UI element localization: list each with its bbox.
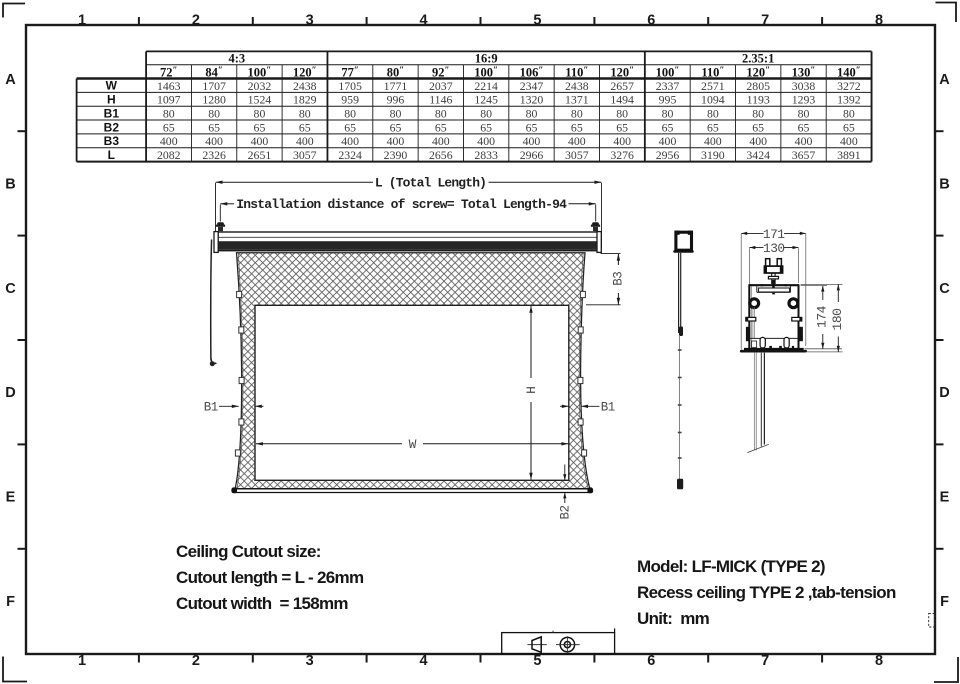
svg-text:2214: 2214 [474,79,498,93]
svg-text:65: 65 [798,120,810,134]
svg-text:2657: 2657 [610,79,634,93]
svg-text:1193: 1193 [747,93,770,107]
svg-text:1771: 1771 [384,79,408,93]
svg-text:3057: 3057 [293,148,317,162]
svg-text:100″: 100″ [474,65,498,80]
svg-text:400: 400 [432,134,450,148]
svg-text:7: 7 [761,12,769,28]
svg-text:65: 65 [344,120,356,134]
svg-text:4:3: 4:3 [228,52,245,66]
svg-text:B: B [939,176,949,192]
svg-text:2805: 2805 [746,79,770,93]
svg-text:400: 400 [795,134,813,148]
svg-text:2.35:1: 2.35:1 [742,52,774,66]
svg-text:80: 80 [344,107,356,121]
svg-text:D: D [5,385,15,401]
svg-text:106″: 106″ [520,65,544,80]
svg-text:1097: 1097 [157,93,181,107]
svg-text:2: 2 [192,12,200,28]
svg-text:174: 174 [815,305,830,328]
svg-text:65: 65 [163,120,175,134]
svg-text:3272: 3272 [837,79,861,93]
svg-text:3891: 3891 [837,148,861,162]
svg-text:1320: 1320 [520,93,544,107]
svg-text:C: C [5,281,16,297]
svg-text:65: 65 [752,120,764,134]
svg-text:1280: 1280 [202,93,226,107]
svg-text:2438: 2438 [565,79,589,93]
svg-text:400: 400 [523,134,541,148]
svg-text:B2: B2 [104,120,120,134]
svg-text:1524: 1524 [248,93,272,107]
svg-text:72″: 72″ [160,65,178,80]
svg-text:65: 65 [435,120,447,134]
svg-text:W: W [106,79,118,93]
svg-text:7: 7 [761,653,769,669]
svg-text:2390: 2390 [384,148,408,162]
svg-text:3038: 3038 [792,79,816,93]
svg-text:L: L [108,148,115,162]
svg-text:2326: 2326 [202,148,226,162]
svg-text:400: 400 [704,134,722,148]
svg-text:80: 80 [390,107,402,121]
svg-text:1392: 1392 [837,93,861,107]
svg-text:C: C [939,281,950,297]
svg-text:1829: 1829 [293,93,317,107]
svg-text:400: 400 [749,134,767,148]
svg-text:6: 6 [647,653,655,669]
svg-text:400: 400 [160,134,178,148]
svg-text:3: 3 [306,653,314,669]
svg-text:92″: 92″ [432,65,450,80]
svg-text:16:9: 16:9 [475,52,498,66]
svg-text:400: 400 [613,134,631,148]
svg-text:1094: 1094 [701,93,725,107]
svg-text:F: F [940,594,949,610]
svg-text:W: W [409,437,417,452]
svg-text:E: E [940,490,950,506]
svg-text:120″: 120″ [746,65,770,80]
svg-text:100″: 100″ [248,65,272,80]
svg-text:80: 80 [526,107,538,121]
svg-text:2347: 2347 [520,79,544,93]
svg-text:100″: 100″ [656,65,680,80]
svg-text:400: 400 [387,134,405,148]
svg-text:110″: 110″ [565,65,588,80]
svg-text:6: 6 [647,12,655,28]
svg-text:4: 4 [420,653,428,669]
svg-text:1245: 1245 [474,93,498,107]
svg-text:65: 65 [662,120,674,134]
svg-text:65: 65 [254,120,266,134]
svg-text:400: 400 [296,134,314,148]
svg-text:80: 80 [299,107,311,121]
svg-text:400: 400 [840,134,858,148]
svg-text:80″: 80″ [387,65,405,80]
svg-text:3057: 3057 [565,148,589,162]
svg-text:2337: 2337 [656,79,680,93]
svg-text:80: 80 [480,107,492,121]
svg-text:F: F [6,594,15,610]
svg-text:B1: B1 [601,401,615,415]
svg-text:84″: 84″ [205,65,223,80]
svg-text:8: 8 [875,653,883,669]
svg-text:2651: 2651 [248,148,272,162]
svg-text:80: 80 [435,107,447,121]
svg-text:1: 1 [78,12,86,28]
svg-text:2438: 2438 [293,79,317,93]
svg-text:65: 65 [843,120,855,134]
svg-text:Installation distance of screw: Installation distance of screw= Total Le… [236,197,567,212]
svg-text:400: 400 [659,134,677,148]
svg-text:65: 65 [526,120,538,134]
svg-text:3190: 3190 [701,148,725,162]
svg-text:65: 65 [208,120,220,134]
svg-text:2082: 2082 [157,148,181,162]
svg-text:130″: 130″ [792,65,816,80]
svg-text:959: 959 [341,93,359,107]
svg-text:171: 171 [763,227,785,242]
svg-text:5: 5 [533,653,541,669]
svg-text:B1: B1 [104,106,120,120]
svg-text:80: 80 [798,107,810,121]
svg-text:L (Total Length): L (Total Length) [375,176,486,191]
svg-text:2833: 2833 [474,148,498,162]
svg-text:2: 2 [192,653,200,669]
svg-text:77″: 77″ [341,65,359,80]
svg-text:2037: 2037 [429,79,453,93]
svg-text:400: 400 [205,134,223,148]
svg-text:4: 4 [420,12,428,28]
svg-text:E: E [6,490,16,506]
svg-text:H: H [524,386,539,394]
svg-text:D: D [939,385,949,401]
svg-text:400: 400 [568,134,586,148]
svg-text:80: 80 [843,107,855,121]
svg-text:B3: B3 [612,272,626,286]
svg-text:B1: B1 [204,401,218,415]
svg-text:80: 80 [163,107,175,121]
svg-text:180: 180 [830,309,845,331]
svg-text:80: 80 [254,107,266,121]
svg-text:3: 3 [306,12,314,28]
svg-text:65: 65 [707,120,719,134]
svg-text:80: 80 [662,107,674,121]
svg-text:1463: 1463 [157,79,181,93]
svg-text:1707: 1707 [202,79,226,93]
svg-text:120″: 120″ [610,65,634,80]
svg-text:110″: 110″ [701,65,724,80]
svg-text:130: 130 [763,241,785,256]
svg-text:120″: 120″ [293,65,317,80]
svg-text:80: 80 [616,107,628,121]
svg-text:H: H [107,93,116,107]
svg-text:8: 8 [875,12,883,28]
svg-text:B2: B2 [559,505,573,519]
svg-text:65: 65 [299,120,311,134]
svg-text:65: 65 [480,120,492,134]
svg-text:1371: 1371 [565,93,589,107]
svg-text:5: 5 [533,12,541,28]
svg-text:65: 65 [390,120,402,134]
svg-text:A: A [5,72,16,88]
svg-text:2966: 2966 [520,148,544,162]
svg-text:80: 80 [752,107,764,121]
svg-text:3276: 3276 [610,148,634,162]
svg-text:3424: 3424 [746,148,770,162]
svg-text:80: 80 [707,107,719,121]
svg-text:A: A [939,72,950,88]
svg-text:400: 400 [477,134,495,148]
svg-text:1146: 1146 [429,93,452,107]
svg-text:1: 1 [78,653,86,669]
svg-text:996: 996 [387,93,405,107]
svg-text:65: 65 [616,120,628,134]
svg-text:400: 400 [251,134,269,148]
svg-text:80: 80 [208,107,220,121]
svg-text:1705: 1705 [338,79,362,93]
svg-text:2571: 2571 [701,79,725,93]
svg-text:400: 400 [341,134,359,148]
svg-text:140″: 140″ [837,65,861,80]
svg-text:2324: 2324 [338,148,362,162]
svg-text:2032: 2032 [248,79,272,93]
svg-text:3657: 3657 [792,148,816,162]
svg-text:80: 80 [571,107,583,121]
svg-text:B3: B3 [104,134,120,148]
svg-text:1494: 1494 [610,93,634,107]
svg-text:2956: 2956 [656,148,680,162]
svg-text:65: 65 [571,120,583,134]
svg-text:995: 995 [659,93,677,107]
svg-text:2656: 2656 [429,148,453,162]
svg-text:1293: 1293 [792,93,816,107]
svg-text:B: B [5,176,15,192]
